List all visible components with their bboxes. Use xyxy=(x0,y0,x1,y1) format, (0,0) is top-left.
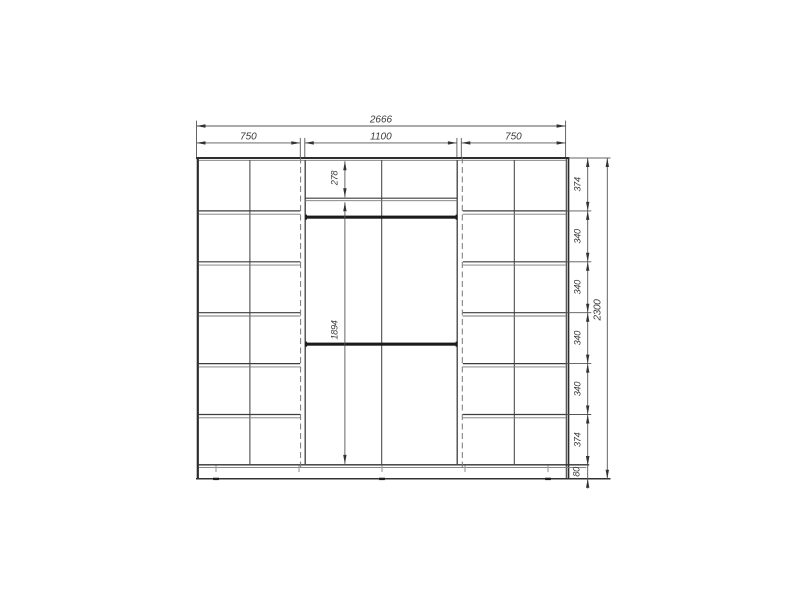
svg-text:1100: 1100 xyxy=(370,131,392,142)
svg-text:750: 750 xyxy=(240,131,257,142)
svg-text:1894: 1894 xyxy=(330,320,340,339)
svg-text:2300: 2300 xyxy=(592,299,603,322)
svg-text:278: 278 xyxy=(330,170,340,187)
svg-text:340: 340 xyxy=(572,279,582,295)
svg-text:374: 374 xyxy=(572,432,582,447)
svg-text:80: 80 xyxy=(572,466,582,477)
svg-text:750: 750 xyxy=(505,131,522,142)
svg-text:340: 340 xyxy=(572,330,582,346)
svg-text:2666: 2666 xyxy=(369,114,393,125)
svg-text:340: 340 xyxy=(572,228,582,244)
svg-text:340: 340 xyxy=(572,381,582,397)
svg-text:374: 374 xyxy=(572,177,582,192)
